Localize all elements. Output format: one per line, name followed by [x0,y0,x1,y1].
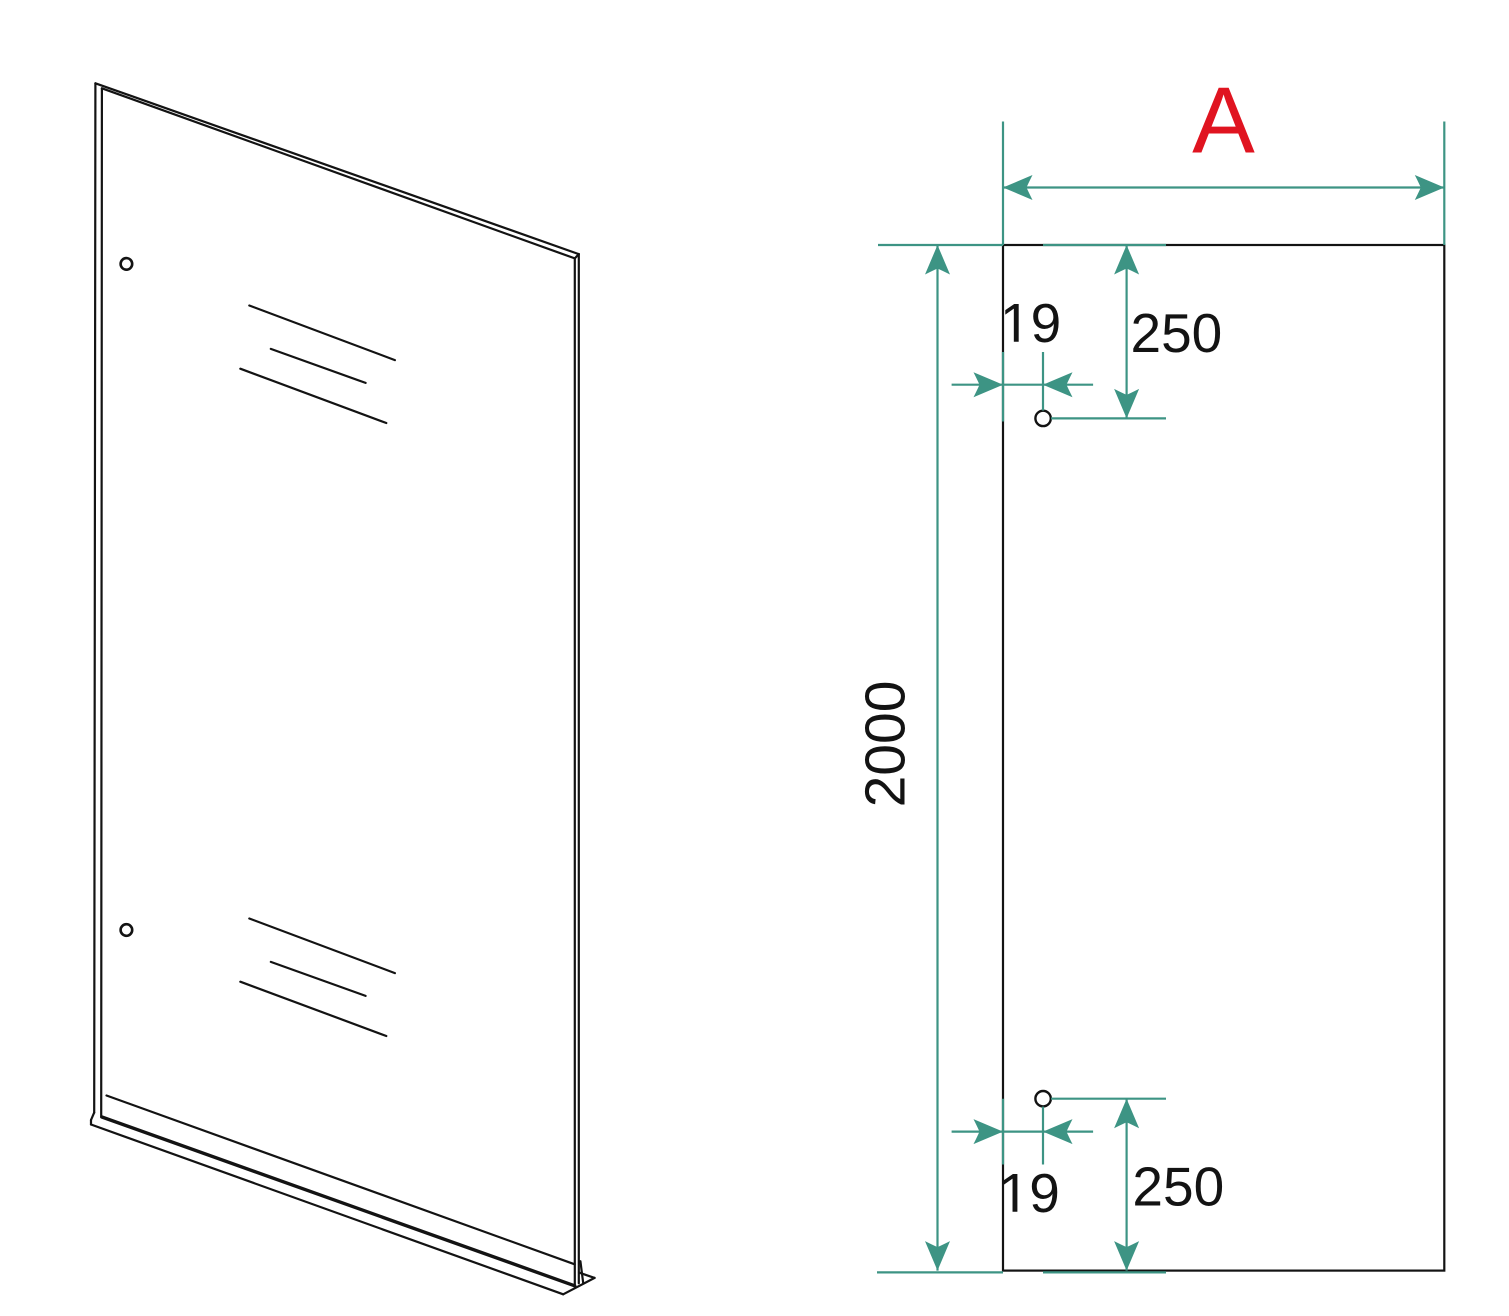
svg-text:2000: 2000 [854,681,918,808]
svg-text:9: 9 [1029,1162,1060,1224]
svg-text:250: 250 [1131,302,1223,364]
svg-text:9: 9 [1031,292,1062,354]
svg-text:250: 250 [1132,1155,1224,1217]
svg-text:A: A [1192,67,1255,172]
